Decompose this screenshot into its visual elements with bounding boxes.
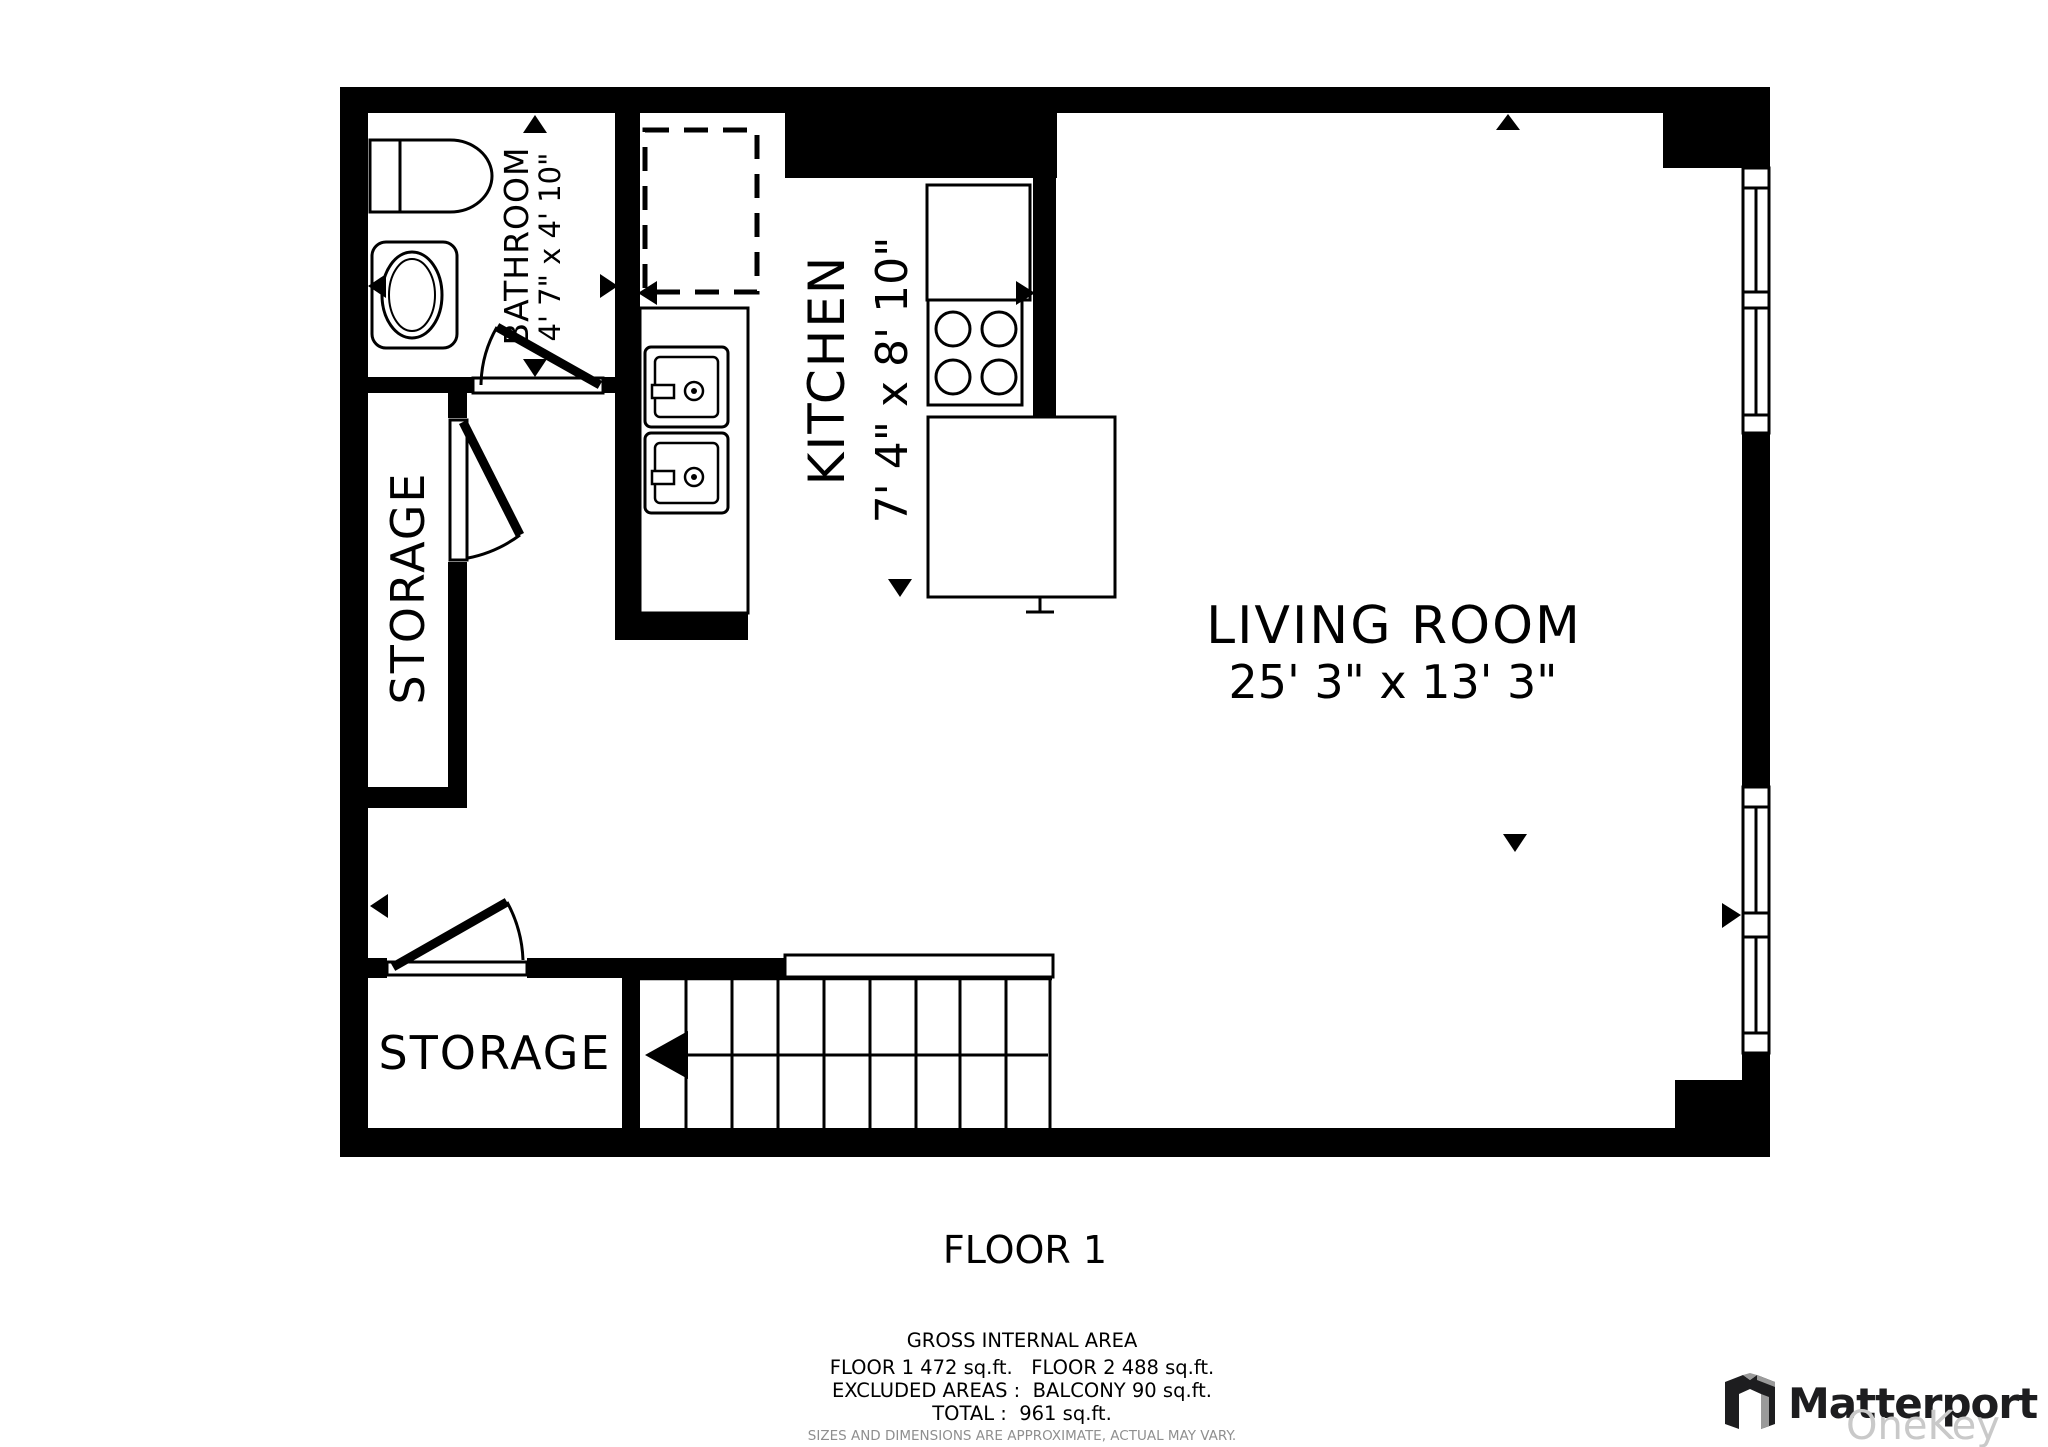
wall-kitchen-top-block bbox=[785, 113, 1057, 178]
counter-peninsula bbox=[928, 417, 1115, 612]
living-room-dims: 25' 3" x 13' 3" bbox=[1229, 655, 1558, 709]
refrigerator-dashed bbox=[645, 130, 757, 292]
wall-storage2-right bbox=[622, 978, 640, 1128]
wall-bathroom-right bbox=[615, 113, 640, 613]
wall-top bbox=[340, 87, 1770, 113]
dimension-arrow-down bbox=[888, 579, 912, 597]
stove bbox=[928, 300, 1022, 405]
area-summary-disclaimer: SIZES AND DIMENSIONS ARE APPROXIMATE, AC… bbox=[808, 1428, 1236, 1444]
area-summary-total: TOTAL : 961 sq.ft. bbox=[931, 1402, 1112, 1425]
bathroom-label: BATHROOM bbox=[497, 147, 536, 346]
wall-bathroom-bottom-left bbox=[340, 377, 473, 393]
wall-bottom bbox=[340, 1128, 1770, 1157]
kitchen-label: KITCHEN bbox=[798, 255, 856, 486]
wall-left bbox=[340, 87, 368, 1157]
burner bbox=[936, 312, 970, 346]
window-group-lower bbox=[1743, 787, 1769, 1053]
dimension-arrow-right bbox=[1722, 903, 1741, 928]
burner bbox=[982, 312, 1016, 346]
storage-bottom-label: STORAGE bbox=[379, 1026, 612, 1080]
dimension-arrow-up bbox=[523, 115, 547, 133]
wall-storage-right-lower bbox=[448, 562, 467, 787]
onekey-mls-watermark: OneKey MLS bbox=[1846, 1403, 2048, 1447]
floor-label: FLOOR 1 bbox=[943, 1228, 1107, 1272]
wall-under-sink bbox=[615, 613, 748, 640]
dimension-arrow-left bbox=[370, 894, 388, 918]
wall-storage-right-upper bbox=[448, 393, 467, 418]
stairs bbox=[640, 955, 1053, 1128]
floorplan-page: BATHROOM 4' 7" x 4' 10" KITCHEN 7' 4" x … bbox=[0, 0, 2048, 1447]
stair-direction-arrow bbox=[645, 1031, 688, 1079]
stair-railing bbox=[785, 955, 1053, 977]
wall-right-mid bbox=[1742, 433, 1770, 787]
matterport-logo-icon bbox=[1723, 1372, 1777, 1430]
entry-door bbox=[387, 902, 527, 975]
burner bbox=[936, 360, 970, 394]
storage-closet-door bbox=[450, 420, 520, 560]
dimension-arrow-up bbox=[1496, 114, 1520, 130]
wall-step-bottom-right bbox=[1675, 1080, 1770, 1128]
toilet bbox=[370, 140, 492, 212]
area-summary-title: GROSS INTERNAL AREA bbox=[907, 1329, 1138, 1352]
bathroom-dims: 4' 7" x 4' 10" bbox=[533, 153, 567, 342]
faucet bbox=[652, 385, 674, 398]
wall-corner-top-right bbox=[1663, 87, 1770, 168]
kitchen-dims: 7' 4" x 8' 10" bbox=[867, 237, 918, 524]
burner bbox=[982, 360, 1016, 394]
wall-storage-bottom bbox=[368, 787, 467, 808]
wall-entry-to-stairs bbox=[527, 958, 785, 978]
floorplan-drawing: BATHROOM 4' 7" x 4' 10" KITCHEN 7' 4" x … bbox=[0, 0, 2048, 1447]
wall-entry-stub bbox=[368, 958, 387, 978]
area-summary-excluded: EXCLUDED AREAS : BALCONY 90 sq.ft. bbox=[832, 1379, 1212, 1402]
kitchen-counter-right bbox=[927, 185, 1030, 300]
storage-left-label: STORAGE bbox=[381, 472, 435, 705]
living-room-label: LIVING ROOM bbox=[1206, 596, 1582, 656]
area-summary-floors: FLOOR 1 472 sq.ft. FLOOR 2 488 sq.ft. bbox=[830, 1356, 1215, 1379]
kitchen-sink-counter bbox=[640, 308, 748, 613]
dimension-arrow-down bbox=[1503, 834, 1527, 852]
area-summary: GROSS INTERNAL AREA FLOOR 1 472 sq.ft. F… bbox=[808, 1329, 1236, 1444]
dimension-arrow-down bbox=[523, 359, 547, 377]
window-group-upper bbox=[1743, 168, 1769, 433]
faucet bbox=[652, 471, 674, 484]
wall-kitchen-living-nub bbox=[1033, 178, 1056, 417]
